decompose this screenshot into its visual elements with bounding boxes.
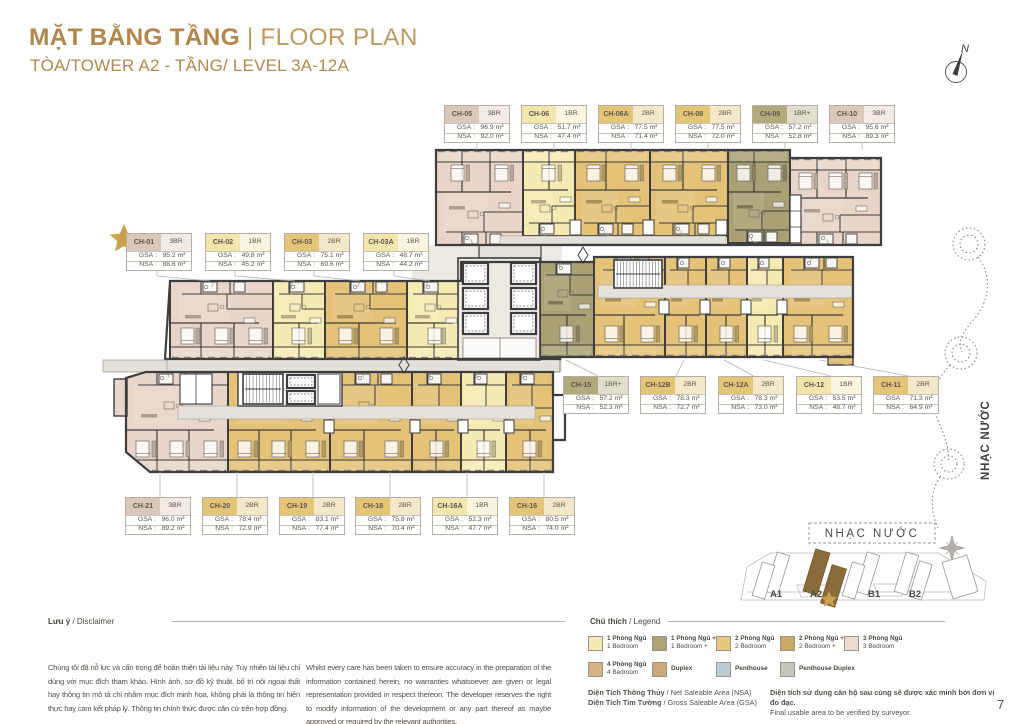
svg-text:NHẠC NƯỚC: NHẠC NƯỚC	[979, 400, 992, 480]
svg-text:B1: B1	[868, 589, 881, 600]
svg-text:A2: A2	[810, 589, 822, 600]
svg-text:N: N	[961, 43, 969, 55]
svg-text:NHẠC NƯỚC: NHẠC NƯỚC	[825, 527, 920, 540]
svg-text:B2: B2	[909, 589, 921, 600]
svg-text:A1: A1	[770, 589, 783, 600]
